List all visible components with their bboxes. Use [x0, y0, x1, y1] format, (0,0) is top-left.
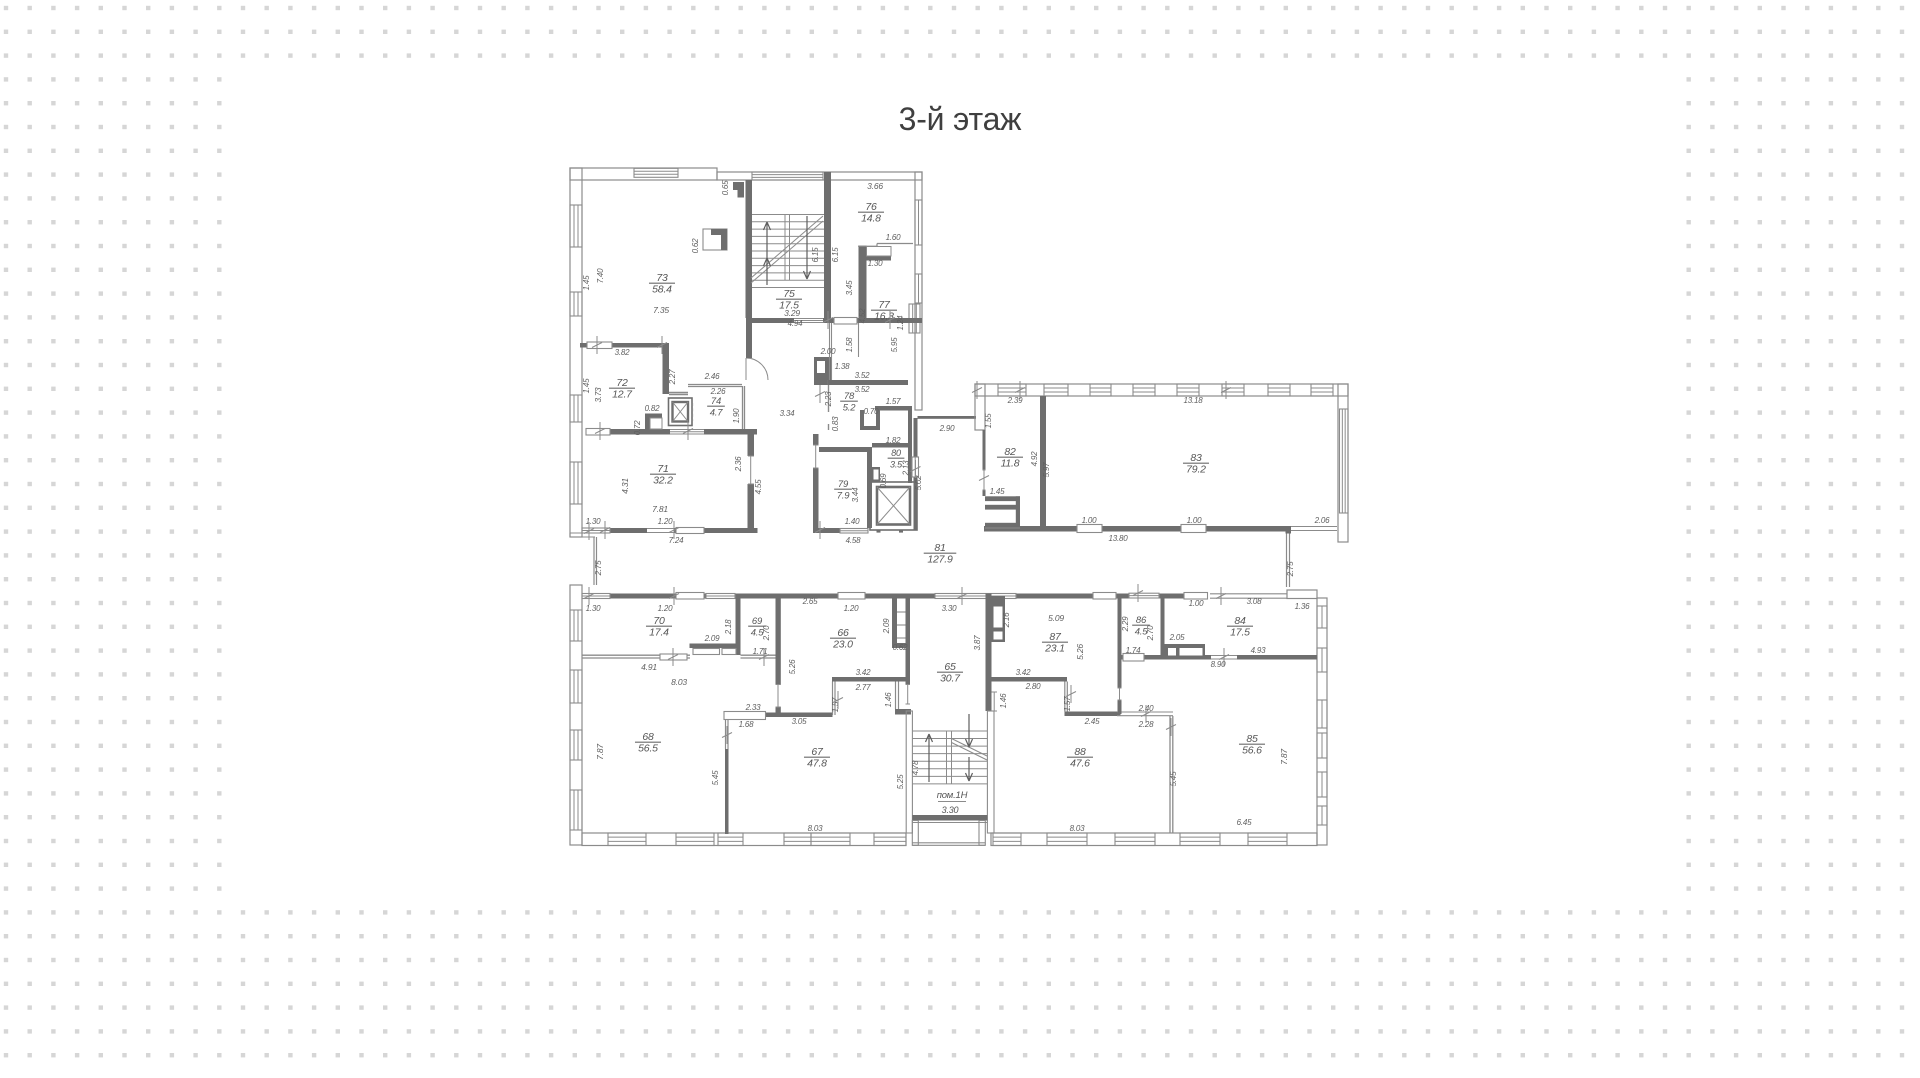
svg-text:78: 78 [844, 391, 855, 402]
svg-text:13.80: 13.80 [1108, 534, 1128, 543]
svg-text:1.30: 1.30 [586, 604, 602, 613]
svg-text:7.81: 7.81 [652, 504, 668, 514]
svg-text:76: 76 [865, 201, 877, 213]
svg-text:4.7: 4.7 [710, 408, 724, 419]
svg-text:14.8: 14.8 [861, 213, 881, 225]
svg-text:1.00: 1.00 [1082, 516, 1098, 525]
svg-text:7.87: 7.87 [595, 744, 605, 760]
svg-text:1.20: 1.20 [658, 517, 674, 526]
svg-text:0.82: 0.82 [645, 404, 661, 413]
svg-text:0.83: 0.83 [831, 416, 840, 432]
svg-text:5.95: 5.95 [890, 337, 899, 353]
svg-text:3.52: 3.52 [855, 371, 871, 380]
svg-text:82: 82 [1004, 446, 1016, 458]
svg-text:3.30: 3.30 [942, 805, 959, 815]
svg-text:65: 65 [944, 661, 956, 673]
svg-text:1.38: 1.38 [835, 362, 851, 371]
svg-text:1.58: 1.58 [845, 337, 854, 353]
svg-text:6.15: 6.15 [831, 247, 840, 263]
svg-text:8.03: 8.03 [808, 824, 824, 833]
svg-text:пом.1Н: пом.1Н [937, 790, 968, 801]
svg-text:2.18: 2.18 [724, 619, 733, 636]
svg-text:1.74: 1.74 [1126, 646, 1142, 655]
svg-text:1.57: 1.57 [886, 397, 902, 406]
svg-text:69: 69 [752, 616, 763, 627]
svg-text:2.36: 2.36 [734, 456, 743, 473]
svg-text:5.45: 5.45 [711, 770, 720, 786]
svg-text:3.87: 3.87 [973, 635, 982, 651]
svg-text:1.24: 1.24 [896, 315, 905, 331]
svg-text:79.2: 79.2 [1186, 464, 1206, 476]
svg-text:0.62: 0.62 [893, 643, 909, 652]
svg-text:85: 85 [1246, 733, 1258, 745]
svg-text:0.65: 0.65 [721, 180, 730, 196]
svg-text:1.90: 1.90 [732, 408, 741, 424]
svg-text:4.93: 4.93 [1251, 646, 1267, 655]
svg-text:3.05: 3.05 [792, 717, 808, 726]
svg-text:3.30: 3.30 [942, 604, 958, 613]
svg-text:86: 86 [1136, 615, 1147, 626]
svg-text:2.75: 2.75 [1286, 561, 1295, 578]
svg-text:2.09: 2.09 [704, 634, 721, 643]
svg-text:3.34: 3.34 [780, 409, 796, 418]
svg-text:5.45: 5.45 [1169, 771, 1178, 787]
svg-text:2.33: 2.33 [745, 703, 762, 712]
svg-text:1.68: 1.68 [739, 720, 755, 729]
svg-text:5.26: 5.26 [788, 659, 797, 675]
svg-text:12.7: 12.7 [612, 389, 633, 401]
svg-text:3.29: 3.29 [784, 308, 800, 318]
svg-text:5.2: 5.2 [843, 403, 857, 414]
svg-text:66: 66 [837, 627, 849, 639]
svg-text:2.77: 2.77 [855, 683, 872, 692]
svg-text:7.35: 7.35 [653, 305, 669, 315]
svg-text:2.13: 2.13 [902, 460, 911, 477]
svg-text:77: 77 [878, 299, 891, 311]
svg-text:2.46: 2.46 [704, 372, 721, 381]
svg-text:81: 81 [934, 542, 945, 554]
svg-text:83: 83 [1190, 452, 1202, 464]
svg-text:3.73: 3.73 [594, 387, 603, 403]
svg-text:0.69: 0.69 [879, 473, 888, 489]
svg-text:5.25: 5.25 [896, 774, 905, 790]
svg-text:30.7: 30.7 [940, 673, 961, 685]
svg-text:2.45: 2.45 [1084, 717, 1101, 726]
svg-text:0.72: 0.72 [633, 420, 642, 436]
svg-text:2.29: 2.29 [1121, 616, 1130, 633]
svg-text:0.70: 0.70 [864, 407, 880, 416]
svg-text:87: 87 [1049, 631, 1062, 643]
svg-text:3.42: 3.42 [1016, 668, 1032, 677]
svg-text:4.52: 4.52 [858, 308, 867, 324]
svg-text:3.52: 3.52 [855, 385, 871, 394]
svg-text:4.31: 4.31 [620, 478, 630, 494]
svg-text:5.97: 5.97 [1042, 462, 1051, 478]
svg-text:47.6: 47.6 [1070, 758, 1090, 770]
svg-text:4.92: 4.92 [1030, 451, 1039, 467]
svg-text:1.46: 1.46 [884, 692, 893, 708]
svg-text:67: 67 [811, 746, 824, 758]
svg-text:4.94: 4.94 [788, 319, 804, 328]
svg-text:1.00: 1.00 [1189, 599, 1205, 608]
svg-text:13.18: 13.18 [1183, 396, 1203, 405]
svg-text:8.03: 8.03 [1070, 824, 1086, 833]
svg-text:73: 73 [656, 272, 668, 284]
svg-text:80: 80 [891, 448, 901, 458]
svg-text:23.0: 23.0 [832, 639, 853, 651]
svg-text:1.71: 1.71 [753, 647, 768, 656]
svg-text:56.6: 56.6 [1242, 745, 1262, 757]
svg-text:1.55: 1.55 [984, 413, 993, 429]
svg-text:3.08: 3.08 [1247, 597, 1263, 606]
svg-text:2.70: 2.70 [762, 625, 771, 642]
svg-text:4.91: 4.91 [641, 662, 657, 672]
svg-text:4.55: 4.55 [754, 479, 763, 495]
svg-text:1.45: 1.45 [582, 275, 591, 291]
svg-text:70: 70 [653, 615, 665, 627]
svg-text:2.70: 2.70 [1146, 625, 1155, 642]
svg-text:5.09: 5.09 [1048, 613, 1064, 623]
svg-text:17.5: 17.5 [1230, 627, 1250, 639]
svg-text:4.58: 4.58 [846, 536, 862, 545]
svg-text:3.82: 3.82 [615, 348, 631, 357]
svg-text:8.03: 8.03 [671, 677, 687, 687]
svg-text:17.4: 17.4 [649, 627, 669, 639]
svg-text:7.9: 7.9 [837, 491, 851, 502]
svg-text:7.40: 7.40 [596, 268, 605, 284]
svg-text:3-й этаж: 3-й этаж [899, 101, 1023, 137]
svg-text:1.45: 1.45 [990, 487, 1006, 496]
svg-text:84: 84 [1234, 615, 1246, 627]
svg-text:74: 74 [711, 396, 721, 407]
svg-text:75: 75 [783, 288, 795, 300]
svg-text:1.45: 1.45 [582, 378, 591, 394]
svg-text:4.78: 4.78 [911, 760, 920, 776]
svg-text:23.1: 23.1 [1044, 643, 1065, 655]
svg-text:0.62: 0.62 [691, 238, 700, 254]
svg-text:32.2: 32.2 [653, 475, 673, 487]
svg-text:1.60: 1.60 [886, 233, 902, 242]
svg-text:2.27: 2.27 [668, 369, 677, 386]
svg-text:7.87: 7.87 [1279, 749, 1289, 765]
svg-text:47.8: 47.8 [807, 758, 827, 770]
svg-text:1.46: 1.46 [999, 693, 1008, 709]
svg-text:3.45: 3.45 [845, 280, 854, 296]
svg-text:5.26: 5.26 [1075, 644, 1085, 660]
svg-text:1.20: 1.20 [658, 604, 674, 613]
svg-text:56.5: 56.5 [638, 743, 658, 755]
svg-text:2.39: 2.39 [1007, 396, 1024, 405]
svg-text:127.9: 127.9 [927, 554, 953, 566]
svg-text:1.82: 1.82 [886, 436, 902, 445]
svg-text:2.09: 2.09 [882, 618, 891, 635]
svg-text:1.40: 1.40 [845, 517, 861, 526]
svg-text:1.36: 1.36 [1295, 602, 1311, 611]
svg-text:1.30: 1.30 [586, 517, 602, 526]
svg-text:2.90: 2.90 [939, 424, 956, 433]
svg-text:2.06: 2.06 [1314, 516, 1331, 525]
svg-text:7.24: 7.24 [669, 536, 685, 545]
svg-text:16.3: 16.3 [874, 311, 894, 323]
svg-text:71: 71 [657, 463, 668, 475]
svg-text:11.8: 11.8 [1001, 458, 1020, 470]
svg-text:2.75: 2.75 [594, 560, 603, 577]
svg-text:72: 72 [616, 377, 628, 389]
svg-text:88: 88 [1074, 746, 1086, 758]
svg-text:2.05: 2.05 [1169, 633, 1186, 642]
svg-text:3.44: 3.44 [851, 487, 860, 503]
svg-text:2.65: 2.65 [802, 597, 819, 606]
svg-text:2.26: 2.26 [710, 387, 727, 396]
svg-text:1.20: 1.20 [844, 604, 860, 613]
svg-text:2.16: 2.16 [1002, 612, 1011, 629]
svg-text:79: 79 [838, 479, 849, 490]
svg-text:2.80: 2.80 [1025, 682, 1042, 691]
svg-text:3.42: 3.42 [856, 668, 872, 677]
svg-text:2.00: 2.00 [820, 347, 837, 356]
svg-text:6.15: 6.15 [811, 247, 820, 263]
svg-text:1.30: 1.30 [868, 259, 884, 268]
svg-text:3.66: 3.66 [867, 181, 883, 191]
svg-text:68: 68 [642, 731, 654, 743]
svg-text:58.4: 58.4 [652, 284, 672, 296]
svg-text:2.23: 2.23 [824, 391, 833, 408]
svg-text:6.45: 6.45 [1237, 818, 1253, 827]
svg-text:1.00: 1.00 [1187, 516, 1203, 525]
